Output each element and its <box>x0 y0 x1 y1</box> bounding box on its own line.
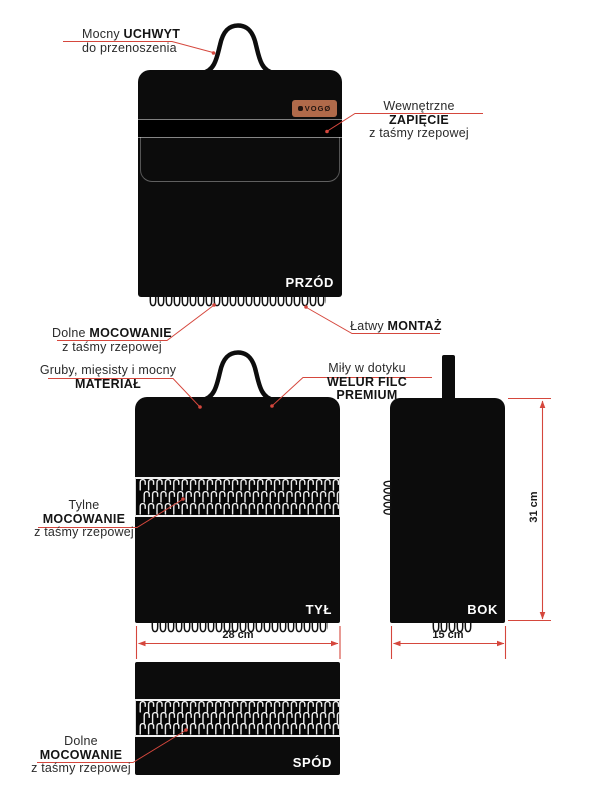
dimension-side-height: 31 cm <box>528 485 540 529</box>
bottom-velcro-strip <box>135 699 340 737</box>
dimension-back-width: 28 cm <box>198 629 278 641</box>
back-velcro-hooks-icon <box>136 479 339 515</box>
front-flap-seam-top <box>138 119 342 120</box>
callout-front-bottom-mount-line1: Dolne MOCOWANIE <box>47 327 177 341</box>
callout-bottom-mount: Dolne MOCOWANIE z taśmy rzepowej <box>25 735 137 776</box>
bottom-view-label: SPÓD <box>293 755 332 770</box>
callout-rear-mount-line1: Tylne <box>28 499 140 513</box>
side-view-label: BOK <box>467 602 498 617</box>
callout-easy-mount-line1: Łatwy MONTAŻ <box>350 320 442 334</box>
back-view-panel: TYŁ <box>135 397 340 623</box>
callout-handle: Mocny UCHWYT do przenoszenia <box>82 28 180 55</box>
callout-velour-line1: Miły w dotyku <box>297 362 437 376</box>
callout-handle-line1: Mocny UCHWYT <box>82 28 180 42</box>
product-infographic: VOGØ PRZÓD TYŁ BOK <box>0 0 600 800</box>
front-view-panel: VOGØ PRZÓD <box>138 70 342 297</box>
back-carry-handle-icon <box>196 347 280 402</box>
back-velcro-strip <box>135 477 340 517</box>
front-mounting-loops-icon <box>148 296 326 308</box>
callout-rear-mount-line3: z taśmy rzepowej <box>28 526 140 540</box>
front-fastening-band <box>138 119 342 137</box>
front-view-label: PRZÓD <box>286 275 335 290</box>
bottom-velcro-hooks-icon <box>136 701 339 735</box>
callout-inner-fastening: Wewnętrzne ZAPIĘCIE z taśmy rzepowej <box>353 100 485 141</box>
front-carry-handle-icon <box>196 20 280 75</box>
front-flap-outline <box>140 137 340 182</box>
dimension-side-width: 15 cm <box>408 629 488 641</box>
badge-text: VOGØ <box>305 104 332 113</box>
callout-material-line2: MATERIAŁ <box>38 378 178 392</box>
callout-velour-line2: WELUR FILC PREMIUM <box>297 376 437 403</box>
side-view-panel: BOK <box>390 398 505 623</box>
back-view-label: TYŁ <box>306 602 332 617</box>
callout-front-bottom-mount: Dolne MOCOWANIE z taśmy rzepowej <box>47 327 177 354</box>
callout-inner-fastening-line1: Wewnętrzne ZAPIĘCIE <box>353 100 485 127</box>
side-edge-hooks-icon <box>381 480 392 516</box>
callout-inner-fastening-line2: z taśmy rzepowej <box>353 127 485 141</box>
callout-front-bottom-mount-line2: z taśmy rzepowej <box>47 341 177 355</box>
callout-rear-mount: Tylne MOCOWANIE z taśmy rzepowej <box>28 499 140 540</box>
badge-logo-icon <box>298 106 303 111</box>
callout-bottom-mount-line1: Dolne <box>25 735 137 749</box>
callout-bottom-mount-line3: z taśmy rzepowej <box>25 762 137 776</box>
bottom-view-panel: SPÓD <box>135 662 340 775</box>
side-hanging-strap <box>442 355 455 401</box>
callout-easy-mount: Łatwy MONTAŻ <box>350 320 442 334</box>
callout-material-line1: Gruby, mięsisty i mocny <box>38 364 178 378</box>
callout-velour: Miły w dotyku WELUR FILC PREMIUM <box>297 362 437 403</box>
callout-rear-mount-line2: MOCOWANIE <box>28 513 140 527</box>
brand-badge: VOGØ <box>292 100 337 117</box>
callout-material: Gruby, mięsisty i mocny MATERIAŁ <box>38 364 178 391</box>
callout-handle-line2: do przenoszenia <box>82 42 180 56</box>
callout-bottom-mount-line2: MOCOWANIE <box>25 749 137 763</box>
